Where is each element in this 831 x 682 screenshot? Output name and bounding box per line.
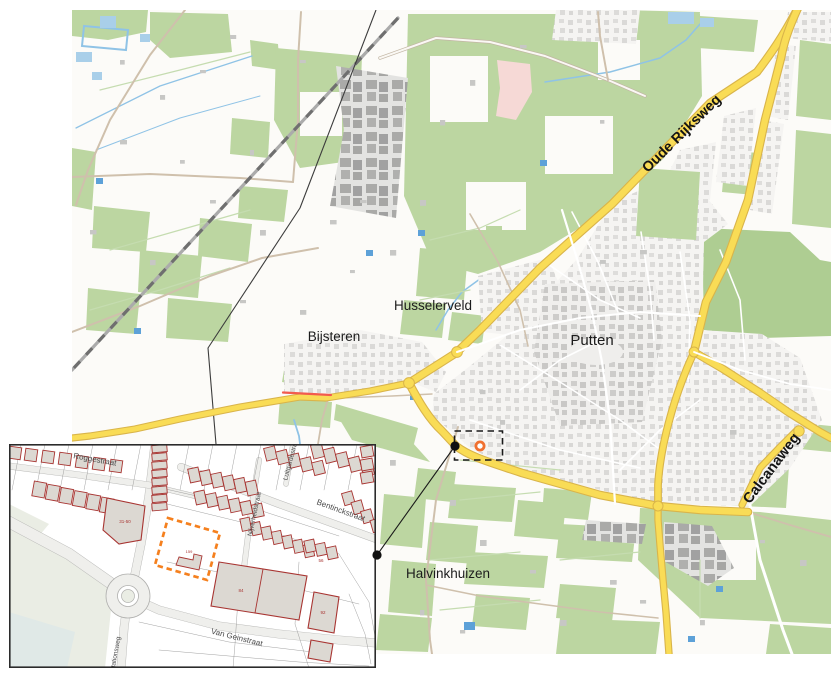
svg-text:Bijsteren: Bijsteren [308,329,361,344]
svg-text:31-50: 31-50 [119,519,131,524]
svg-text:Halvinkhuizen: Halvinkhuizen [406,566,490,581]
svg-text:159: 159 [186,549,193,554]
svg-text:Putten: Putten [570,332,613,349]
svg-text:92: 92 [320,610,326,615]
svg-text:Husselerveld: Husselerveld [394,298,472,313]
svg-text:56: 56 [318,558,324,563]
svg-text:84: 84 [238,588,244,593]
